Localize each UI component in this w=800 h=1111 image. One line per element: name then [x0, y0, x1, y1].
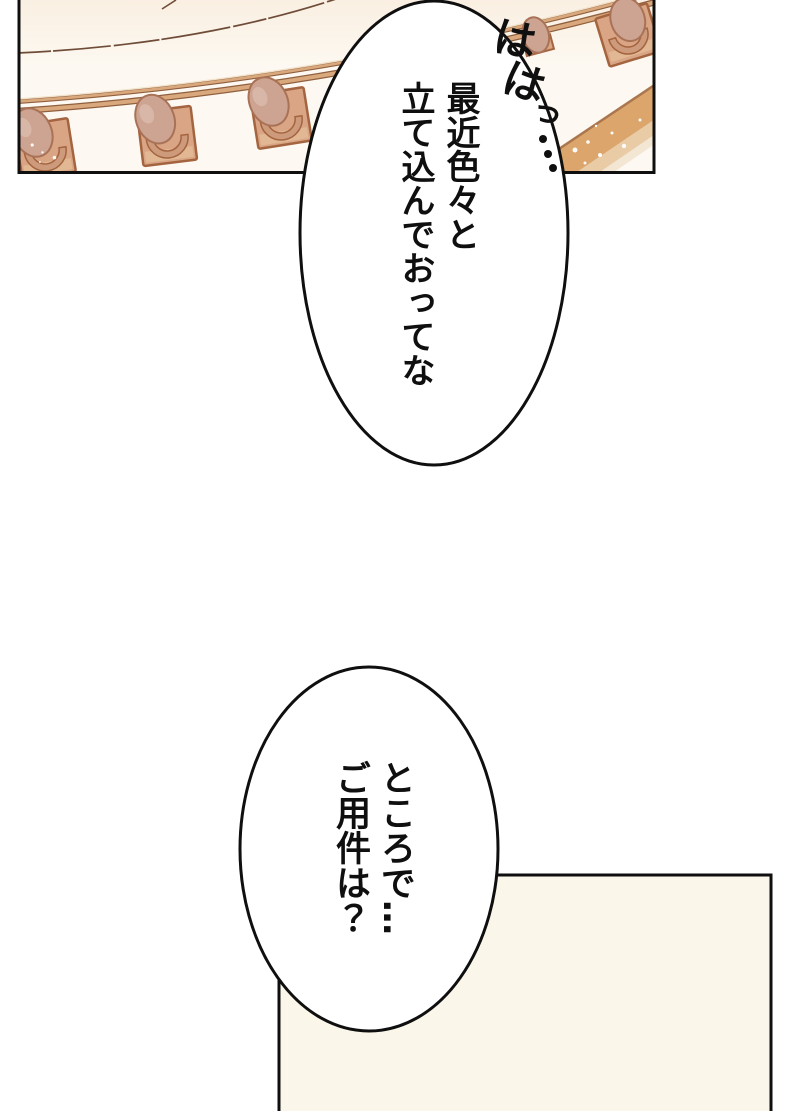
laugh-ellipsis-dot [549, 164, 557, 172]
speech-text-bottom: ところで… ご用件は？ [327, 760, 417, 960]
manga-page: 最近色々と 立て込んでおってな ところで… ご用件は？ は は っ [0, 0, 800, 1111]
laugh-ellipsis-dot [539, 135, 547, 143]
ceiling-wash [18, 0, 656, 70]
speech-text-top: 最近色々と 立て込んでおってな [392, 81, 482, 411]
laugh-ellipsis-dot [544, 150, 552, 158]
